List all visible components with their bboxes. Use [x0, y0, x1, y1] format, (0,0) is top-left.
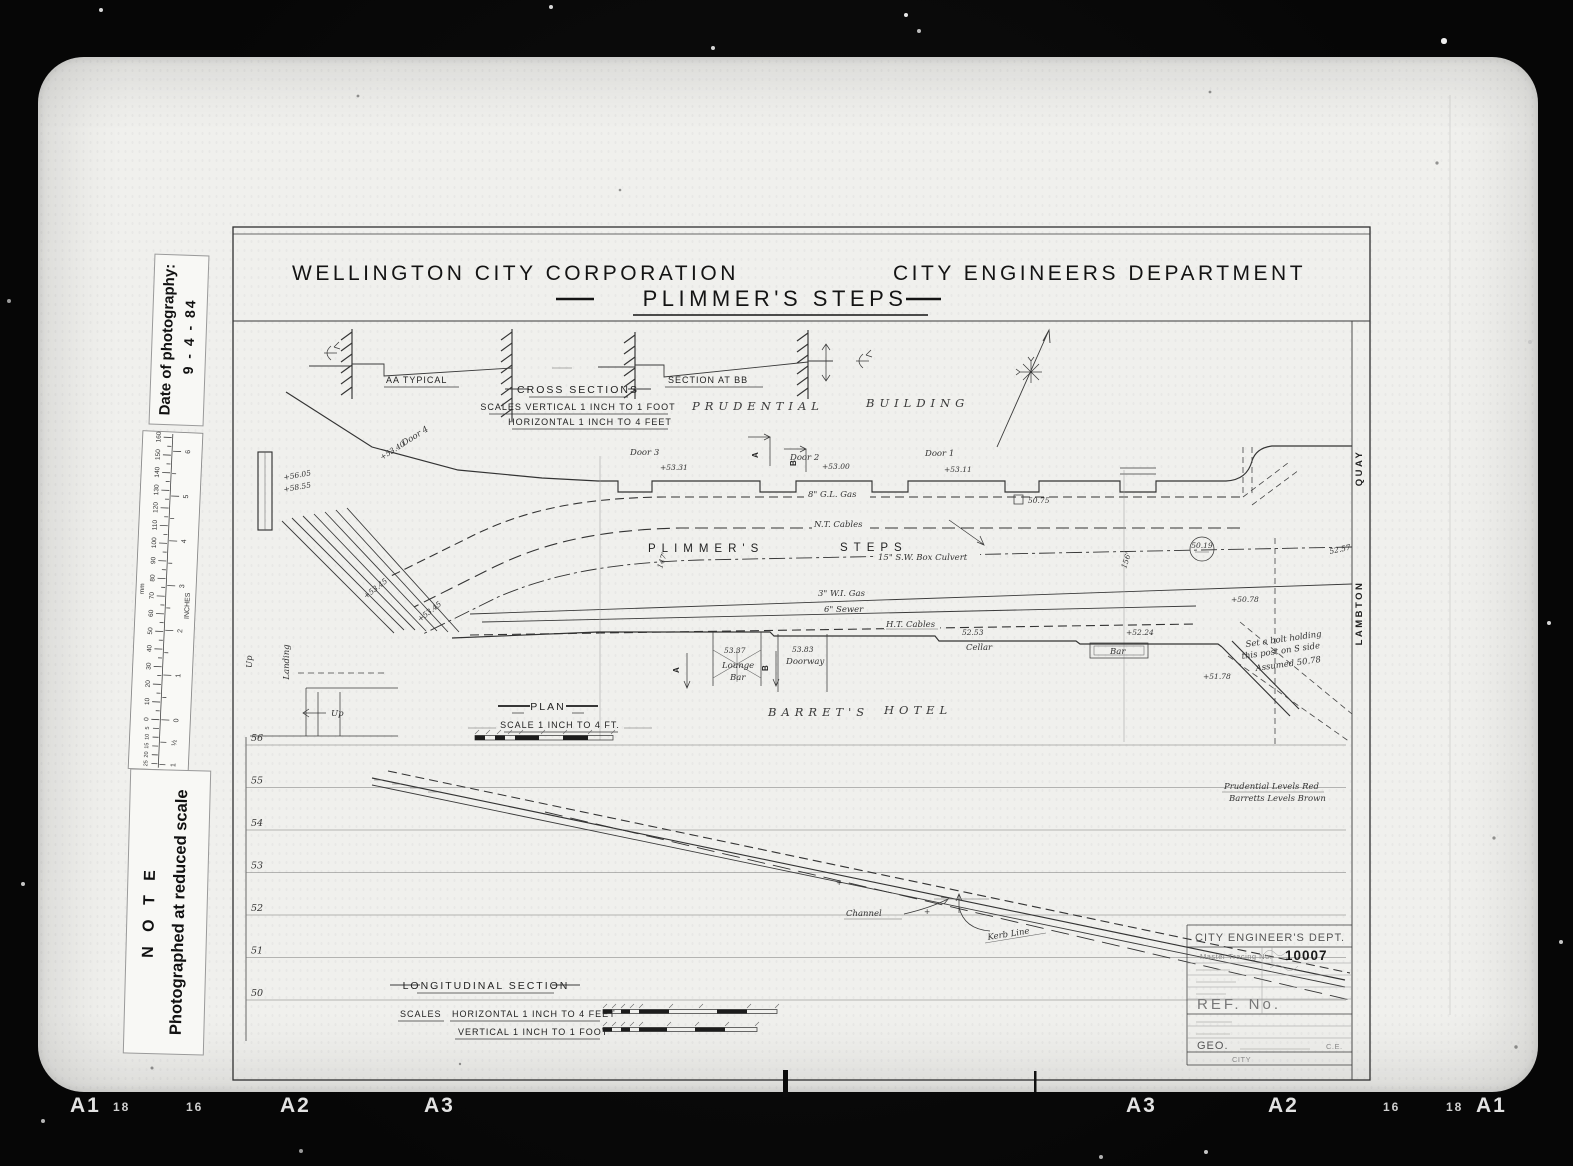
ruler-mm-below-label: 5 [145, 726, 151, 729]
gas-3in-line [470, 584, 1352, 614]
ruler-inch-label: 2 [177, 629, 184, 633]
lounge-word1: Lounge [721, 661, 754, 671]
ruler-inch-below-label: 1 [170, 763, 177, 767]
lounge-word2: Bar [729, 673, 746, 683]
longitudinal-section: 56555453525150 Channel Kerb Line + + Pru… [246, 733, 1350, 1041]
ruler-mm-label: 10 [144, 697, 151, 705]
longsec-scale-v: VERTICAL 1 INCH TO 1 FOOT [458, 1027, 608, 1037]
section-aa-label: AA TYPICAL [386, 375, 447, 385]
north-arrow-star [1016, 357, 1042, 383]
quay-dashed-verticals [1243, 447, 1299, 505]
organisation-title: WELLINGTON CITY CORPORATION [292, 262, 739, 285]
film-frame-mark: A1 [1476, 1094, 1507, 1118]
hotel-outline [452, 632, 1222, 647]
film-sparkles [0, 0, 2, 2]
landing-platform [250, 688, 398, 736]
film-frame-mark: 16 [186, 1100, 203, 1114]
hotel-name-word1: BARRET'S [767, 705, 869, 719]
hotel-name-word2: HOTEL [883, 703, 952, 717]
channel-label: Channel [846, 909, 882, 919]
scale-bar-cell [695, 1028, 725, 1032]
kerb-line-label: Kerb Line [986, 926, 1030, 943]
step-decor-mark [856, 350, 872, 368]
doorway-level: 53.83 [792, 645, 814, 654]
title-block-dept: CITY ENGINEER'S DEPT. [1195, 932, 1345, 944]
circle-level: 50.19 [1191, 541, 1213, 550]
scale-bar-cell [639, 1010, 669, 1014]
film-frame-mark: A2 [1268, 1094, 1299, 1118]
film-splice-mark [783, 1070, 788, 1097]
ruler-mm-label: 70 [149, 592, 156, 600]
gas-main-8in [391, 497, 1240, 576]
header: WELLINGTON CITY CORPORATION CITY ENGINEE… [292, 262, 1306, 315]
levels-note-line1: Prudential Levels Red [1223, 782, 1320, 792]
level-label: 53 [251, 861, 263, 872]
margin-level: 52.57 [1329, 543, 1352, 556]
drawing-scan: Date of photography: 9 - 4 - 84 mm INCHE… [0, 0, 1573, 1166]
lounge-level: 53.37 [724, 646, 746, 655]
film-frame-mark: A3 [1126, 1094, 1157, 1118]
ruler-mm-title: mm [139, 583, 146, 594]
cross-sections-heading: CROSS SECTIONS [517, 384, 639, 396]
scale-bar-flags [603, 1004, 779, 1008]
level-top2: +58.55 [283, 480, 312, 494]
drawing-title: PLIMMER'S STEPS [643, 286, 908, 311]
ruler-mm-label: 50 [147, 627, 154, 635]
scale-bar-cell [621, 1028, 630, 1032]
section-b-letter-bottom: B [761, 665, 770, 671]
step-decor-mark [324, 342, 340, 360]
ruler-inch-label: 5 [183, 494, 190, 498]
gas3-label: 3" W.I. Gas [818, 589, 866, 599]
ruler-mm-label: 90 [150, 556, 157, 564]
plan-heading: PLAN [530, 701, 565, 713]
film-frame-mark: A3 [424, 1094, 455, 1118]
ruler-inch-label: 3 [179, 584, 186, 588]
scale-bar-cell [603, 1010, 612, 1014]
chainage-2: 156' [1119, 551, 1133, 569]
ruler-inch-label: 6 [185, 450, 192, 454]
hatched-wall [341, 329, 352, 399]
ruler-mm-below-label: 15 [144, 742, 150, 748]
tracing-label: Master Tracing No. [1200, 952, 1272, 961]
signature-suffix: C.E. [1326, 1042, 1343, 1051]
ruler-mm-label: 30 [146, 662, 153, 670]
section-a-letter: A [751, 452, 760, 458]
landing-label: Landing [282, 644, 292, 681]
quay-level-a: +50.78 [1231, 595, 1259, 604]
vertical-dimension-arrow [822, 344, 830, 381]
section-a-marker-bottom [684, 653, 690, 688]
section-a-marker-top [748, 434, 770, 466]
ruler-inch-label: 0 [173, 718, 180, 722]
ruler-mm-label: 160 [155, 431, 162, 443]
ruler-mm-below-label: 25 [143, 760, 149, 766]
ruler-mm-label: 80 [149, 574, 156, 582]
scale-bar-cell [515, 736, 539, 741]
section-b-letter: B [789, 460, 798, 466]
ruler-inch-title: INCHES [184, 592, 192, 619]
scale-bar-cell [603, 1028, 612, 1032]
ruler-mm-label: 60 [148, 609, 155, 617]
sewer-label: 6" Sewer [824, 605, 864, 615]
scale-bar-cell [495, 736, 505, 741]
ruler-mm-label: 20 [145, 680, 152, 688]
film-frame-mark: A2 [280, 1094, 311, 1118]
ref-number-label: REF. No. [1197, 996, 1281, 1013]
ruler-mm-label: 140 [154, 466, 161, 478]
ruler-inch-label: 1 [175, 673, 182, 677]
level-label: 56 [251, 733, 263, 744]
nt-cables-label: N.T. Cables [813, 520, 863, 530]
building-name-word2: BUILDING [865, 396, 969, 410]
plan-scale-note: SCALE 1 INCH TO 4 FT. [500, 720, 620, 730]
note-label: N O T E Photographed at reduced scale [123, 769, 210, 1055]
title-block: CITY ENGINEER'S DEPT. Master Tracing No.… [1187, 925, 1352, 1065]
ht-cables-label: H.T. Cables [885, 620, 936, 630]
door3-label: Door 3 [629, 448, 659, 458]
level-label: 52 [251, 903, 263, 914]
department-title: CITY ENGINEERS DEPARTMENT [893, 262, 1306, 285]
film-frame-mark: 18 [1446, 1100, 1463, 1114]
ruler-mm-label: 130 [153, 484, 160, 496]
steps-level-b: +53.45 [416, 599, 444, 623]
ruler-mm-label: 100 [151, 537, 158, 549]
ruler-mm-label: 0 [143, 717, 150, 721]
ruler-mm-label: 150 [155, 449, 162, 461]
building-name-word1: PRUDENTIAL [691, 399, 824, 413]
film-frame-mark: 16 [1383, 1100, 1400, 1114]
level-label: 55 [251, 776, 263, 787]
longsec-heading: LONGITUDINAL SECTION [403, 980, 570, 992]
section-a-letter-bottom: A [672, 667, 681, 673]
scale-bar-cell [621, 1010, 630, 1014]
kerb-profile-line [372, 778, 1345, 980]
tracing-number: 10007 [1285, 948, 1328, 963]
quay-level-b: +51.78 [1203, 672, 1231, 681]
ruler-inch-below-label: ½ [170, 740, 178, 746]
doorway-label: Doorway [785, 657, 824, 667]
bar-label: Bar [1109, 647, 1126, 657]
lower-dashed-profile [545, 812, 1350, 1000]
scale-bar-flags [603, 1022, 759, 1026]
scale-bar-cell [563, 736, 588, 741]
cellar-level: 52.53 [962, 628, 984, 637]
cross-sections-scale-2: HORIZONTAL 1 INCH TO 4 FEET [508, 417, 672, 427]
ruler-mm-below-label: 20 [144, 751, 150, 757]
up-arrow [303, 709, 326, 717]
hatched-wall [797, 330, 808, 399]
cross-sections: AA TYPICAL SECTION AT BB CROSS SECTIONS … [309, 329, 872, 429]
plus-mark: + [924, 907, 930, 916]
cellar-label: Cellar [966, 643, 993, 653]
section-bb-label: SECTION AT BB [668, 375, 748, 385]
date-label: Date of photography: 9 - 4 - 84 [149, 254, 209, 426]
levels-note-line2: Barretts Levels Brown [1228, 794, 1326, 804]
date-label-value: 9 - 4 - 84 [180, 298, 199, 375]
level-label: 51 [251, 946, 263, 957]
street-name-lambton: LAMBTON [1354, 581, 1365, 646]
film-frame-mark: A1 [70, 1094, 101, 1118]
up-label: Up [331, 709, 344, 719]
scale-bar-cell [717, 1010, 747, 1014]
signature-prefix: GEO. [1197, 1040, 1229, 1052]
film-tick-mark [1034, 1071, 1037, 1092]
culvert-label: 15" S.W. Box Culvert [878, 553, 968, 563]
door1-label: Door 1 [924, 449, 954, 459]
ruler-mm-label: 120 [152, 502, 159, 514]
plus-mark: + [836, 878, 842, 887]
gas8-label: 8" G.L. Gas [808, 490, 857, 500]
level-label: 54 [251, 818, 263, 829]
film-frame-mark: 18 [113, 1100, 130, 1114]
longsec-scale-h: HORIZONTAL 1 INCH TO 4 FEET [452, 1009, 616, 1019]
nt-cables-arrow [949, 520, 984, 545]
fold-streak [1449, 95, 1451, 1015]
scale-bar-cell [475, 736, 485, 741]
level-label: 50 [251, 988, 263, 999]
cross-sections-scale-1: SCALES VERTICAL 1 INCH TO 1 FOOT [480, 402, 675, 412]
door2-level: +53.00 [822, 462, 850, 471]
ruler-mm-below-label: 10 [144, 734, 150, 740]
longsec-scales-word: SCALES [400, 1009, 442, 1019]
north-arrow [997, 330, 1050, 447]
up-label-2: Up [245, 655, 255, 668]
dust-specks [151, 91, 1518, 1070]
door3-level: +53.31 [660, 463, 688, 472]
door1-level: +53.11 [944, 465, 972, 474]
boxed-level: 50.75 [1028, 496, 1050, 505]
title-block-footer: CITY [1232, 1055, 1251, 1064]
bar-level: +52.24 [1126, 628, 1154, 637]
scale-bar-cell [639, 1028, 667, 1032]
ruler-mm-label: 110 [152, 519, 159, 530]
door1-threshold [1120, 468, 1156, 474]
north-arrow-line [997, 330, 1050, 447]
ruler-mm-label: 40 [146, 644, 153, 652]
note-label-title: N O T E [140, 865, 159, 958]
scale-ruler: mm INCHES 010203040506070809010011012013… [128, 430, 203, 777]
street-name-quay: QUAY [1354, 450, 1365, 487]
door4-level: +53.40 [378, 439, 407, 461]
ruler-inch-label: 4 [181, 539, 188, 543]
valve-box-symbol [1014, 495, 1023, 504]
step-ticks [374, 780, 437, 792]
plan-view: PRUDENTIAL BUILDING Door 4 +53.40 Door 3… [245, 392, 1365, 744]
